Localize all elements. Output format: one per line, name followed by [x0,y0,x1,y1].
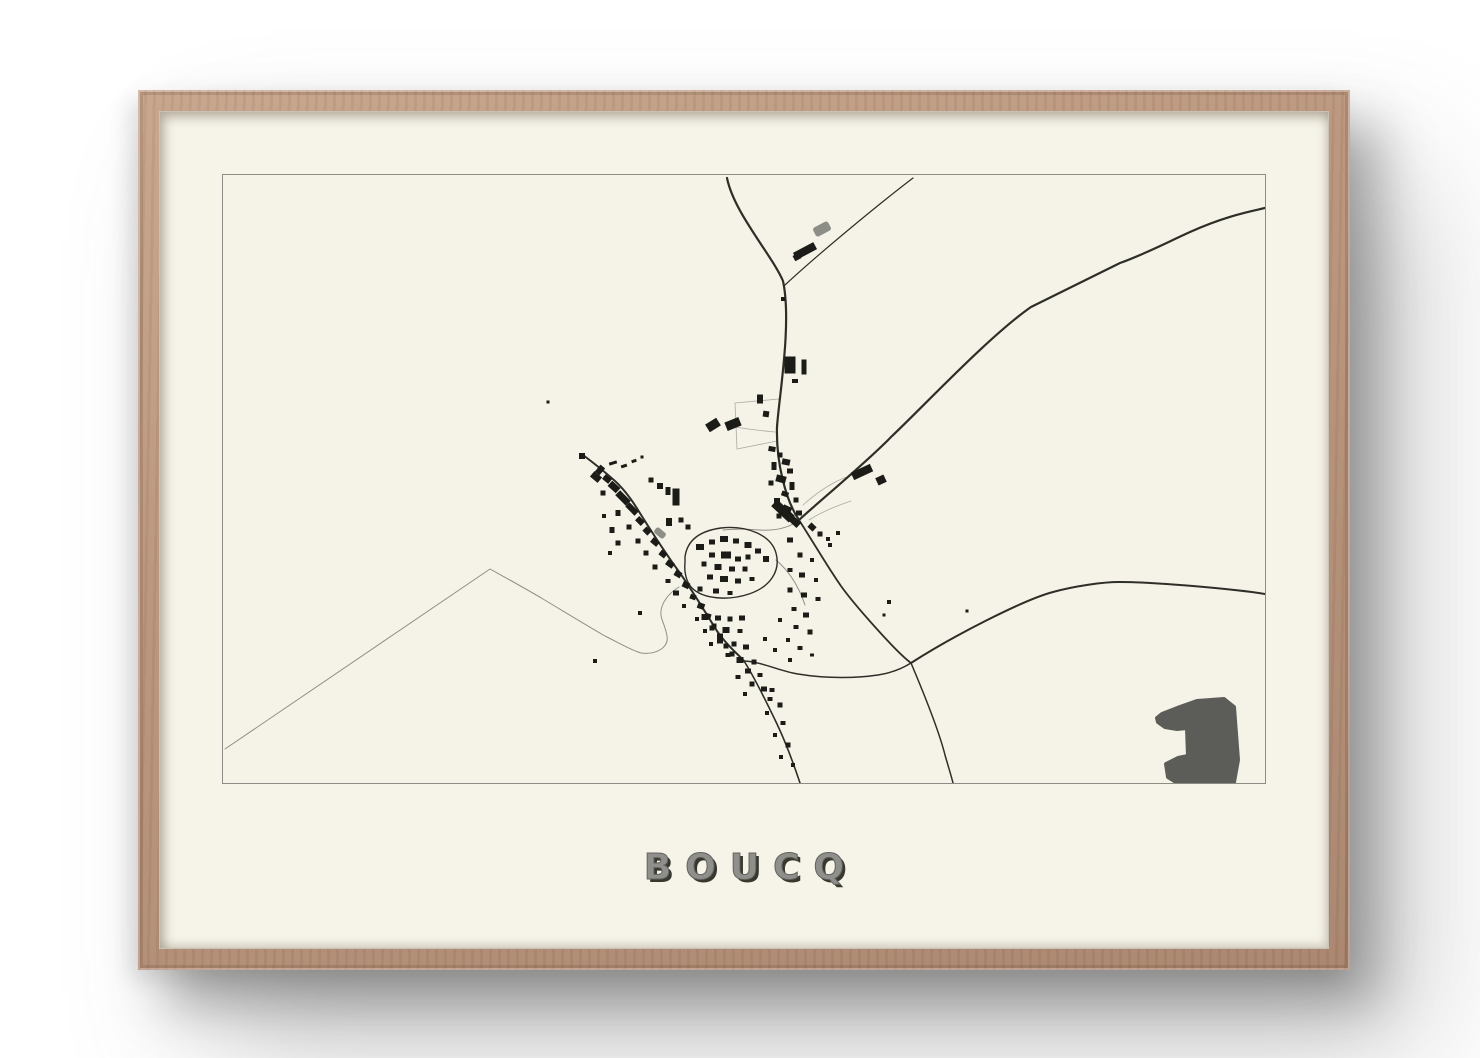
building [785,357,796,374]
building [631,459,637,463]
building [709,642,713,646]
poster-paper: BOUCQ [159,111,1329,949]
building [732,642,737,647]
building [772,462,777,470]
building [610,527,615,533]
building [739,616,745,621]
building [768,697,773,701]
building [758,673,763,677]
building [781,721,786,725]
field-enclosure [735,399,779,449]
building [798,646,803,650]
building [707,575,713,580]
building [702,614,709,620]
building [686,525,691,530]
building [720,536,728,542]
building [814,578,818,582]
building [790,482,795,490]
building [733,539,739,544]
building [709,540,715,545]
building [720,576,728,582]
building [818,532,823,537]
building [666,487,671,495]
building [802,360,807,375]
building [966,610,969,613]
building [746,555,751,560]
building [644,551,649,556]
building [729,567,735,572]
building [828,543,832,547]
building [799,573,805,578]
building [794,498,799,503]
building [788,568,793,572]
building [547,401,550,404]
building [750,577,755,581]
building [743,692,747,696]
building [752,660,757,665]
village-map-svg [223,175,1265,783]
building [579,453,585,459]
map-border [222,174,1266,784]
building [736,675,741,679]
building [724,417,741,431]
building [786,743,791,748]
building [638,611,642,615]
building [602,474,612,484]
building [812,221,832,238]
roads-group [583,178,1265,783]
building [728,617,733,622]
building [717,634,723,639]
northeast-lane [785,178,913,285]
building [726,653,731,657]
building [593,659,597,663]
building [743,567,748,572]
building [653,565,658,570]
building [713,589,719,594]
building [836,531,840,535]
building [715,564,722,570]
building [608,551,612,555]
building [698,587,703,592]
building [665,559,675,569]
building [796,511,802,516]
building [763,411,770,418]
building [696,544,704,550]
building [788,588,793,593]
wall-background: BOUCQ [0,0,1480,1058]
building [851,464,873,480]
south-road [911,663,953,783]
field-line-a [735,427,775,432]
picture-frame: BOUCQ [138,90,1350,970]
building [702,562,707,567]
building [735,579,741,584]
building [792,379,798,383]
building [641,456,644,459]
poster-title-text: BOUCQ [644,847,858,888]
forest-blob [1157,699,1238,782]
building [679,518,684,523]
building [770,688,775,692]
building [724,644,729,649]
building [745,669,751,674]
building [658,549,667,558]
building [801,593,807,598]
building [803,613,809,618]
building [792,607,797,611]
building [616,541,621,546]
building [721,552,731,559]
building [810,558,814,562]
building [794,625,799,629]
southwest-long-lane [225,569,679,749]
building [778,453,783,458]
building [775,474,786,483]
building [779,755,783,759]
building [807,522,816,531]
building [673,591,679,596]
building [717,639,723,644]
building [875,474,887,485]
building [810,654,814,657]
building [621,464,628,469]
loop-east-spur [776,560,805,605]
building [673,570,682,579]
building [750,682,755,687]
building [616,510,621,516]
building [788,658,792,662]
building [650,537,660,547]
building [627,525,632,530]
building [769,481,774,486]
west-link-road [744,661,911,678]
building [657,483,663,489]
building [673,489,680,506]
buildings-group [547,242,969,767]
building [710,626,715,631]
building [798,553,803,558]
village-to-junction-road [799,520,911,663]
building [761,687,767,692]
building [781,297,785,301]
building [715,616,721,621]
building [735,557,741,562]
building [763,556,769,562]
north-village-lane [723,520,799,530]
building [608,481,621,494]
building [695,617,699,621]
building [781,458,790,466]
building [745,542,752,548]
building [601,491,606,496]
building [709,553,715,558]
building [786,638,790,642]
building [763,637,767,641]
building [778,703,783,708]
building [887,600,891,604]
building [737,657,744,663]
building [705,418,721,433]
building [738,629,743,633]
east-road [911,582,1265,663]
building [808,630,813,635]
building [773,733,777,737]
building [768,446,776,452]
building [682,604,686,608]
building [609,460,618,465]
building [791,763,795,767]
building [728,591,733,595]
building [778,618,782,622]
building [723,627,730,633]
building [757,395,763,404]
gray-buildings-group [653,221,832,540]
building [666,518,672,526]
building [602,514,606,518]
building [773,648,777,652]
building [743,645,749,650]
building [883,614,886,617]
poster-title: BOUCQ [160,847,1328,888]
building [787,469,793,474]
building [666,579,671,583]
northeast-diagonal-road [799,208,1265,520]
building [826,537,830,541]
building [765,711,769,715]
building [636,539,641,544]
building [703,629,707,633]
building [689,594,696,601]
building [649,478,654,483]
building [816,597,821,601]
building [755,549,761,554]
field-line-c [809,501,851,520]
building [787,538,793,543]
